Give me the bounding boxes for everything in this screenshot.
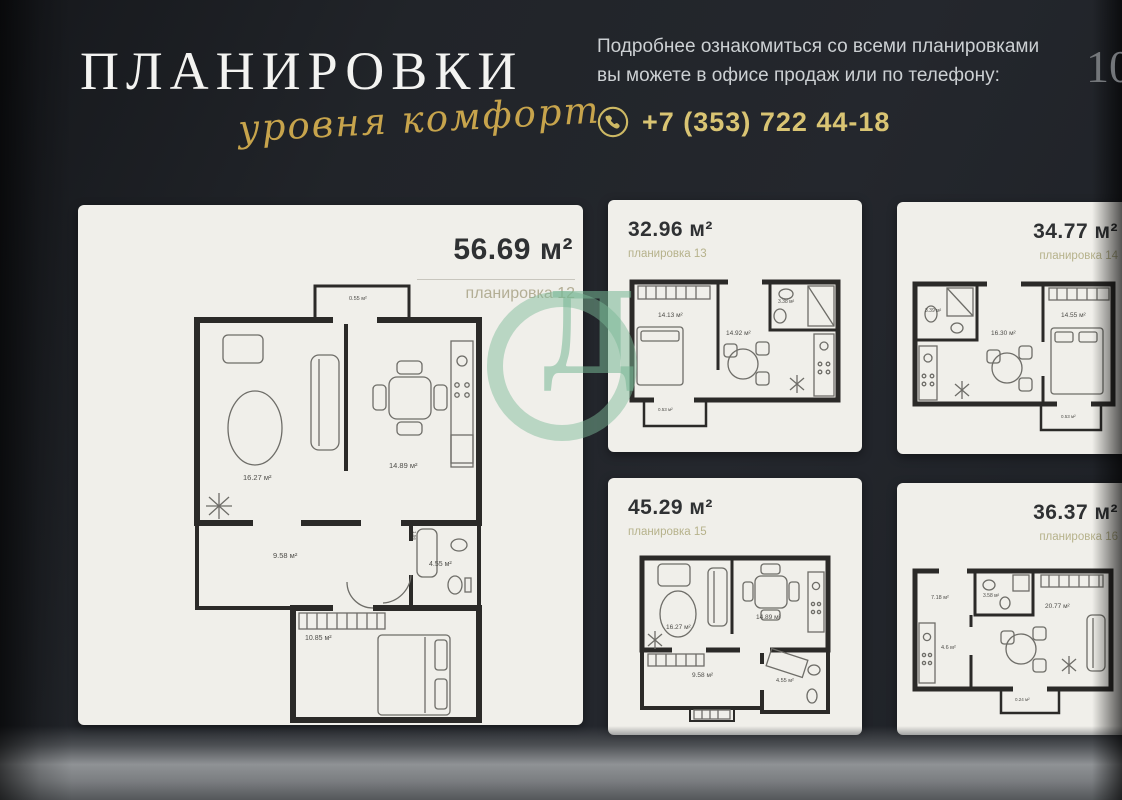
- kitchen-counter-icon: [451, 341, 473, 467]
- upper-block-walls: [197, 320, 479, 523]
- room-label-balcony: 0.24 м²: [1015, 697, 1030, 702]
- plant-icon: [1062, 656, 1076, 674]
- room-label-living: 16.27 м²: [666, 624, 691, 631]
- area-label: 34.77 м²: [1033, 220, 1118, 244]
- rug-icon: [228, 391, 282, 465]
- floor-plan-drawing: [628, 272, 842, 442]
- room-label-hall: 7.18 м²: [931, 595, 949, 601]
- bedroom-walls: [293, 608, 479, 720]
- kitchen-counter-icon: [919, 623, 935, 683]
- toilet-icon: [448, 576, 471, 594]
- plant-icon: [955, 381, 969, 399]
- page-left-shadow: [0, 0, 72, 800]
- room-label-bath: 3.38 м²: [778, 299, 794, 305]
- room-label-bedroom: 14.55 м²: [1061, 312, 1086, 319]
- sofa-icon: [311, 355, 339, 450]
- floor-plan-drawing: [911, 272, 1117, 450]
- plan-name: планировка 16: [1039, 531, 1118, 543]
- floor-plan-12: 0.55 м² 16.27 м² 14.89 м² 9.58 м² 4.55 м…: [193, 283, 483, 723]
- kitchen-counter-icon: [808, 572, 824, 632]
- sink-icon: [451, 539, 467, 551]
- bathroom-fixtures-icon: [983, 575, 1029, 609]
- plant-icon: [206, 493, 232, 519]
- area-label: 32.96 м²: [628, 218, 713, 242]
- plan-name: планировка 14: [1039, 250, 1118, 262]
- room-label-balcony: 0.53 м²: [1061, 414, 1076, 419]
- room-label-bath: 3.58 м²: [983, 593, 999, 599]
- bed-icon: [1051, 328, 1103, 394]
- sofa-icon: [708, 568, 727, 626]
- bed-icon: [637, 327, 683, 385]
- room-label-hall: 9.58 м²: [273, 551, 297, 560]
- room-label-hall: 9.58 м²: [692, 672, 713, 679]
- wardrobe-icon: [1041, 575, 1103, 587]
- page-number: 10: [1086, 40, 1122, 93]
- room-label-duct: 1.56: [412, 531, 417, 540]
- plan-card-14: 34.77 м² планировка 14: [897, 202, 1122, 454]
- kitchen-counter-icon: [919, 346, 937, 400]
- room-label-bath: 4.55 м²: [776, 678, 794, 684]
- round-table-icon: [987, 346, 1032, 391]
- room-label-bedroom: 14.13 м²: [658, 312, 683, 319]
- balcony-walls: [315, 286, 409, 320]
- plan-card-12: 56.69 м² планировка 12: [78, 205, 583, 725]
- room-label-bath: 4.55 м²: [429, 561, 452, 568]
- wardrobe-icon: [648, 654, 704, 666]
- brochure-page: ПЛАНИРОВКИ уровня комфорт Подробнее озна…: [0, 0, 1122, 800]
- phone-icon: [597, 106, 629, 138]
- info-line-2: вы можете в офисе продаж или по телефону…: [597, 65, 1000, 86]
- bed-icon: [378, 635, 450, 715]
- wardrobe-icon: [1049, 288, 1109, 300]
- sofa-icon: [1087, 615, 1105, 671]
- wardrobe-icon: [299, 613, 385, 629]
- room-label-bedroom: 10.85 м²: [305, 635, 332, 642]
- washer-icon: [694, 710, 730, 719]
- room-label-balcony: 0.55 м²: [349, 296, 367, 302]
- page-title: ПЛАНИРОВКИ: [80, 40, 523, 102]
- room-label-bath: 3.39 м²: [925, 308, 941, 314]
- room-label-kitchen: 14.89 м²: [389, 461, 418, 470]
- floor-plan-14: 3.39 м² 16.30 м² 14.55 м² 0.53 м²: [911, 272, 1117, 450]
- plan-card-13: 32.96 м² планировка 13: [608, 200, 862, 452]
- plant-icon: [790, 375, 804, 393]
- plan-card-16: 36.37 м² планировка 16: [897, 483, 1122, 735]
- kitchen-counter-icon: [814, 334, 834, 396]
- floor-plan-drawing: [628, 554, 842, 726]
- room-label-living: 20.77 м²: [1045, 603, 1070, 610]
- floor-plan-16: 7.18 м² 3.58 м² 20.77 м² 4.6 м² 0.24 м²: [909, 557, 1117, 733]
- dining-table-icon: [373, 361, 447, 435]
- room-label-living: 16.27 м²: [243, 473, 272, 482]
- armchair-icon: [223, 335, 263, 363]
- round-table-icon: [724, 342, 769, 385]
- info-text: Подробнее ознакомиться со всеми планиров…: [597, 32, 1077, 91]
- armchair-icon: [658, 564, 690, 586]
- wardrobe-icon: [638, 286, 710, 299]
- floor-plan-13: 14.13 м² 14.92 м² 3.38 м² 0.53 м²: [628, 272, 842, 442]
- page-bottom-edge: [0, 726, 1122, 800]
- room-label-balcony: 0.53 м²: [658, 407, 673, 412]
- phone-row: +7 (353) 722 44-18: [597, 106, 890, 138]
- area-label: 56.69 м²: [453, 233, 573, 267]
- divider-line: [417, 279, 575, 280]
- room-label-kitchen: 14.92 м²: [726, 330, 751, 337]
- floor-plan-15: 16.27 м² 14.89 м² 9.58 м² 4.55 м²: [628, 554, 842, 726]
- area-label: 36.37 м²: [1033, 501, 1118, 525]
- phone-number: +7 (353) 722 44-18: [642, 107, 890, 138]
- bathroom-fixtures-icon: [774, 286, 834, 326]
- room-label-kitchen: 16.30 м²: [991, 330, 1016, 337]
- area-label: 45.29 м²: [628, 496, 713, 520]
- dining-table-icon: [743, 564, 799, 620]
- plan-name: планировка 15: [628, 526, 707, 538]
- room-label-kitchen: 14.89 м²: [756, 614, 781, 621]
- room-label-kitchen: 4.6 м²: [941, 645, 956, 651]
- plant-icon: [648, 631, 662, 649]
- floor-plan-drawing: [193, 283, 483, 723]
- plan-card-15: 45.29 м² планировка 15: [608, 478, 862, 735]
- hall-walls: [197, 523, 411, 608]
- round-table-icon: [1001, 627, 1046, 672]
- bathroom-fixtures-icon: [766, 649, 820, 703]
- bathtub-icon: [417, 529, 437, 577]
- plan-name: планировка 13: [628, 248, 707, 260]
- info-line-1: Подробнее ознакомиться со всеми планиров…: [597, 36, 1039, 57]
